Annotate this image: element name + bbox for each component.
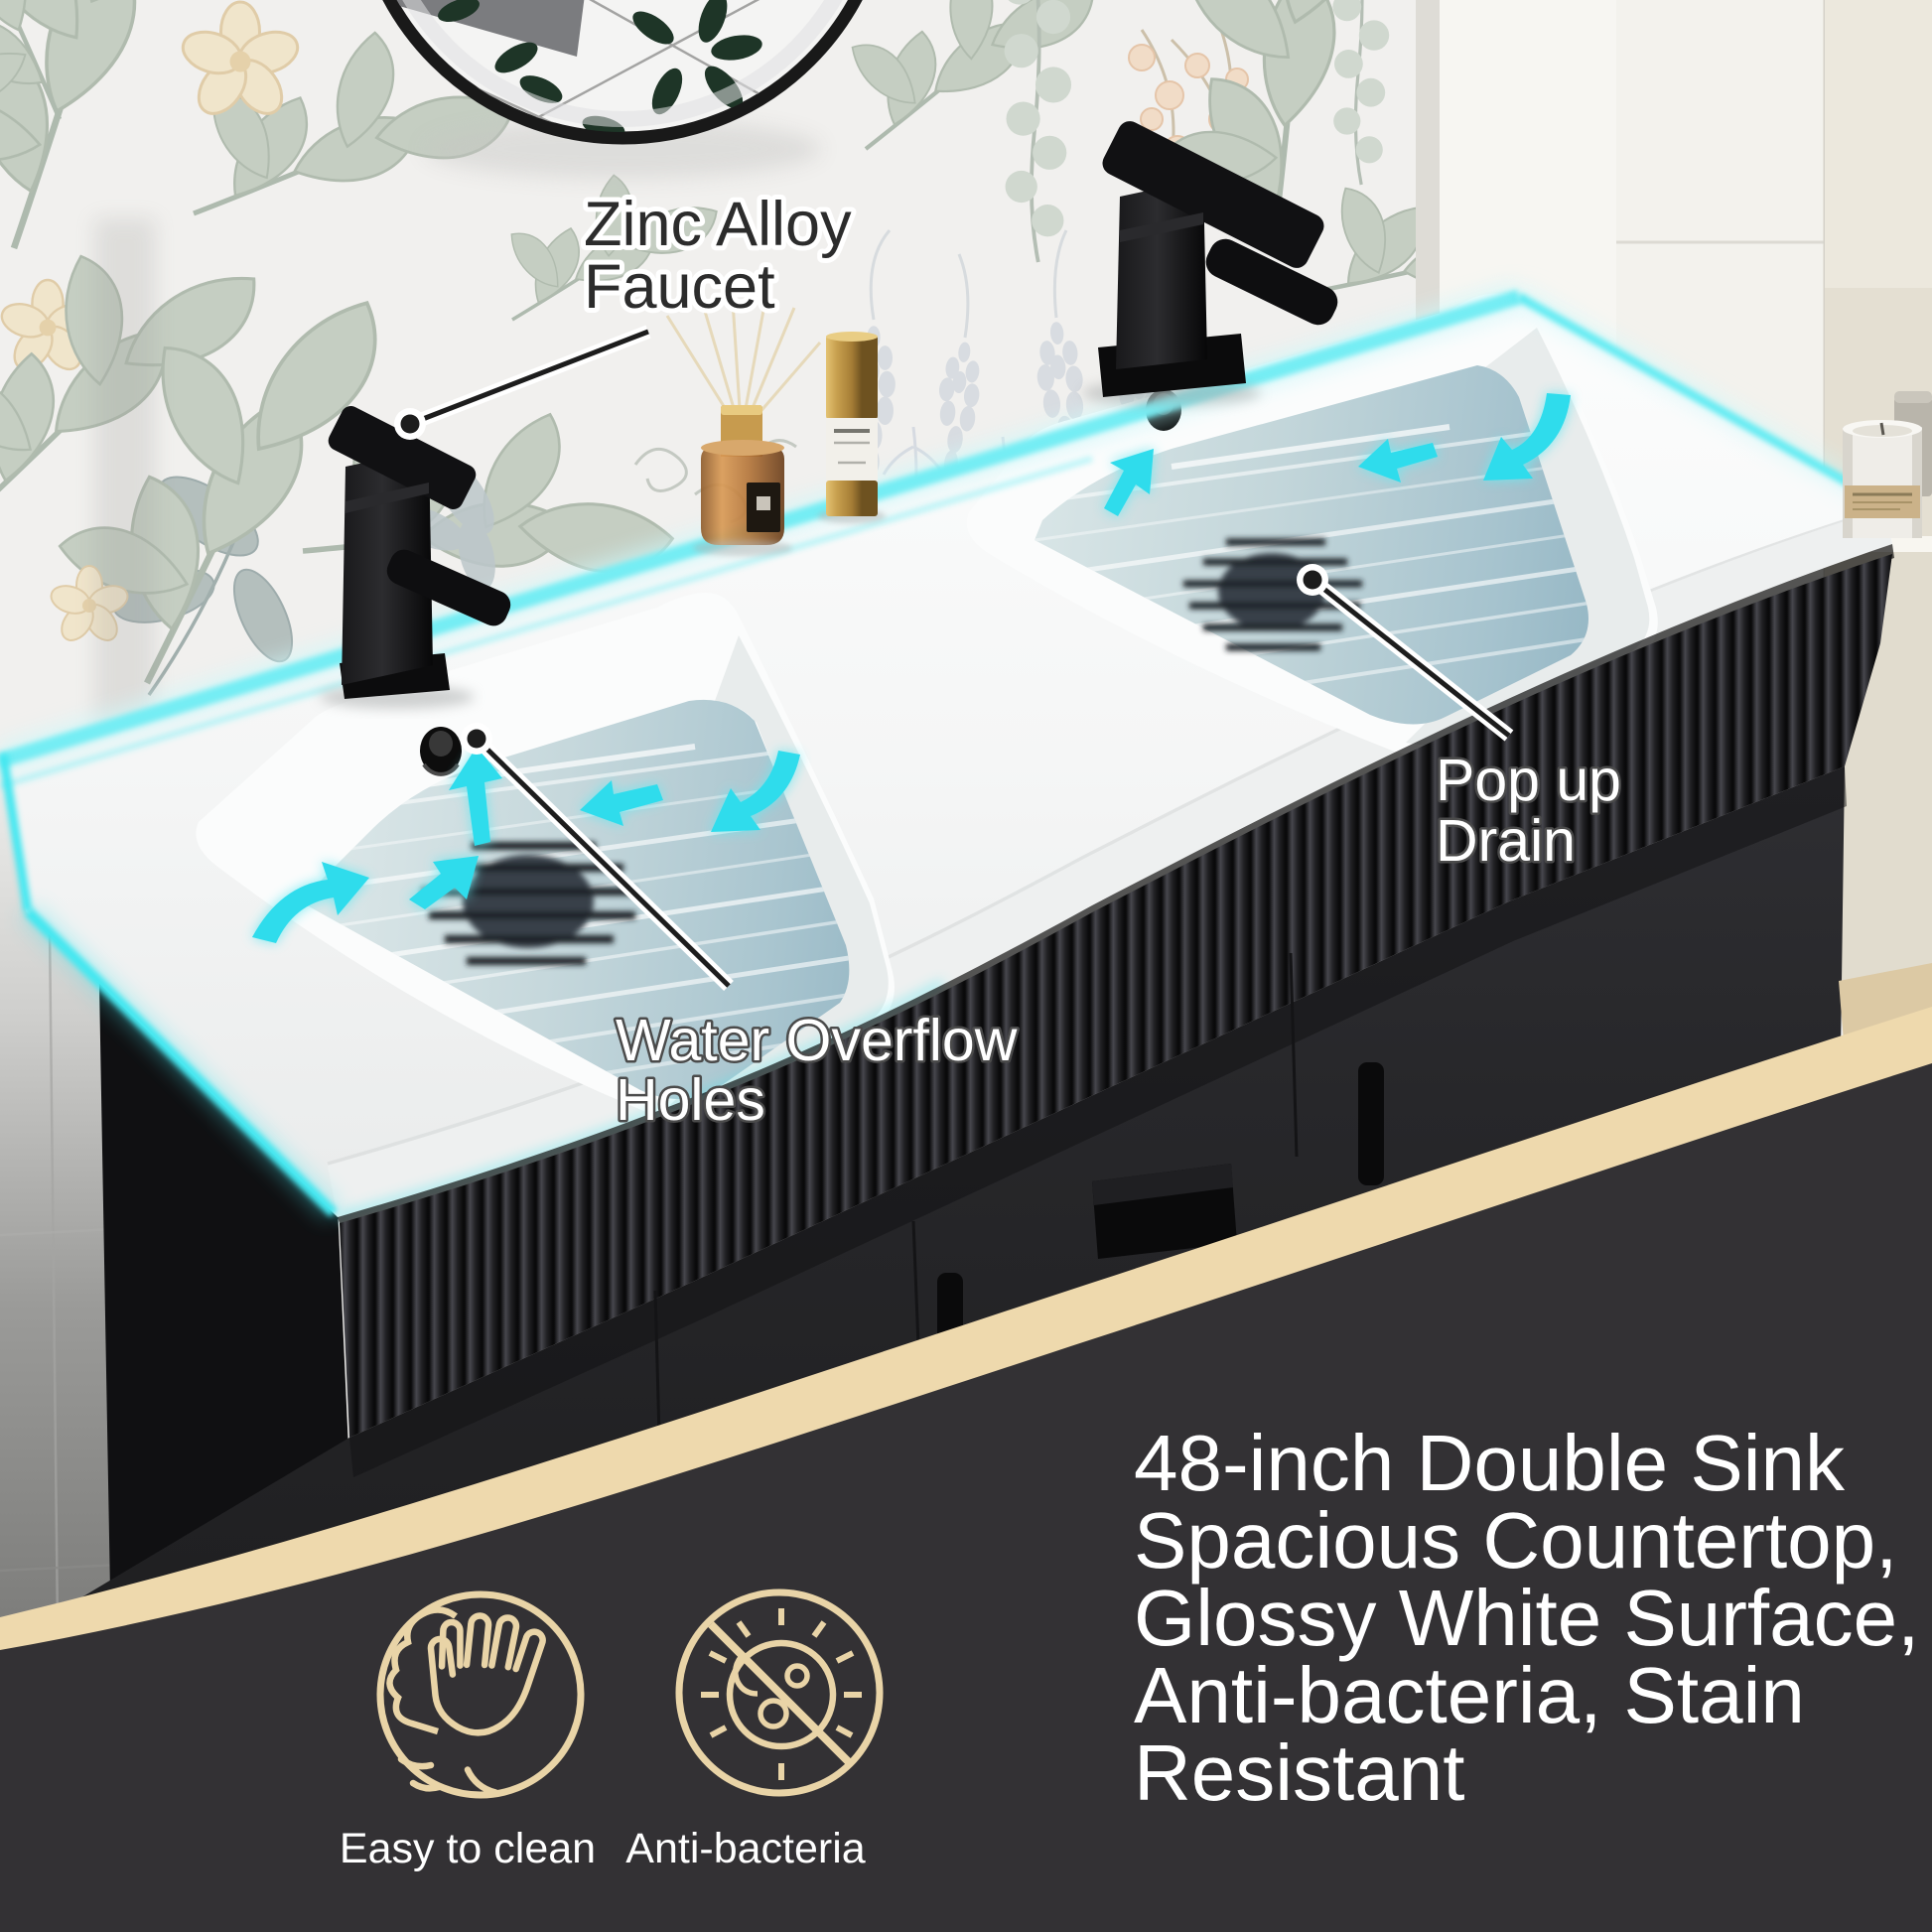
svg-text:Faucet: Faucet [584, 252, 775, 322]
svg-text:Holes: Holes [616, 1067, 765, 1133]
svg-text:Anti-bacteria, Stain: Anti-bacteria, Stain [1134, 1651, 1805, 1739]
svg-text:Glossy White Surface,: Glossy White Surface, [1134, 1574, 1919, 1662]
svg-text:Pop up: Pop up [1436, 748, 1621, 813]
svg-text:Resistant: Resistant [1134, 1728, 1464, 1817]
svg-text:Zinc Alloy: Zinc Alloy [584, 190, 852, 259]
svg-text:Spacious Countertop,: Spacious Countertop, [1134, 1496, 1897, 1585]
svg-text:Easy to clean: Easy to clean [340, 1825, 596, 1872]
svg-text:Water Overflow: Water Overflow [616, 1008, 1018, 1073]
svg-text:Anti-bacteria: Anti-bacteria [625, 1825, 865, 1872]
svg-text:48-inch Double Sink: 48-inch Double Sink [1134, 1419, 1846, 1507]
svg-text:Drain: Drain [1436, 808, 1576, 874]
